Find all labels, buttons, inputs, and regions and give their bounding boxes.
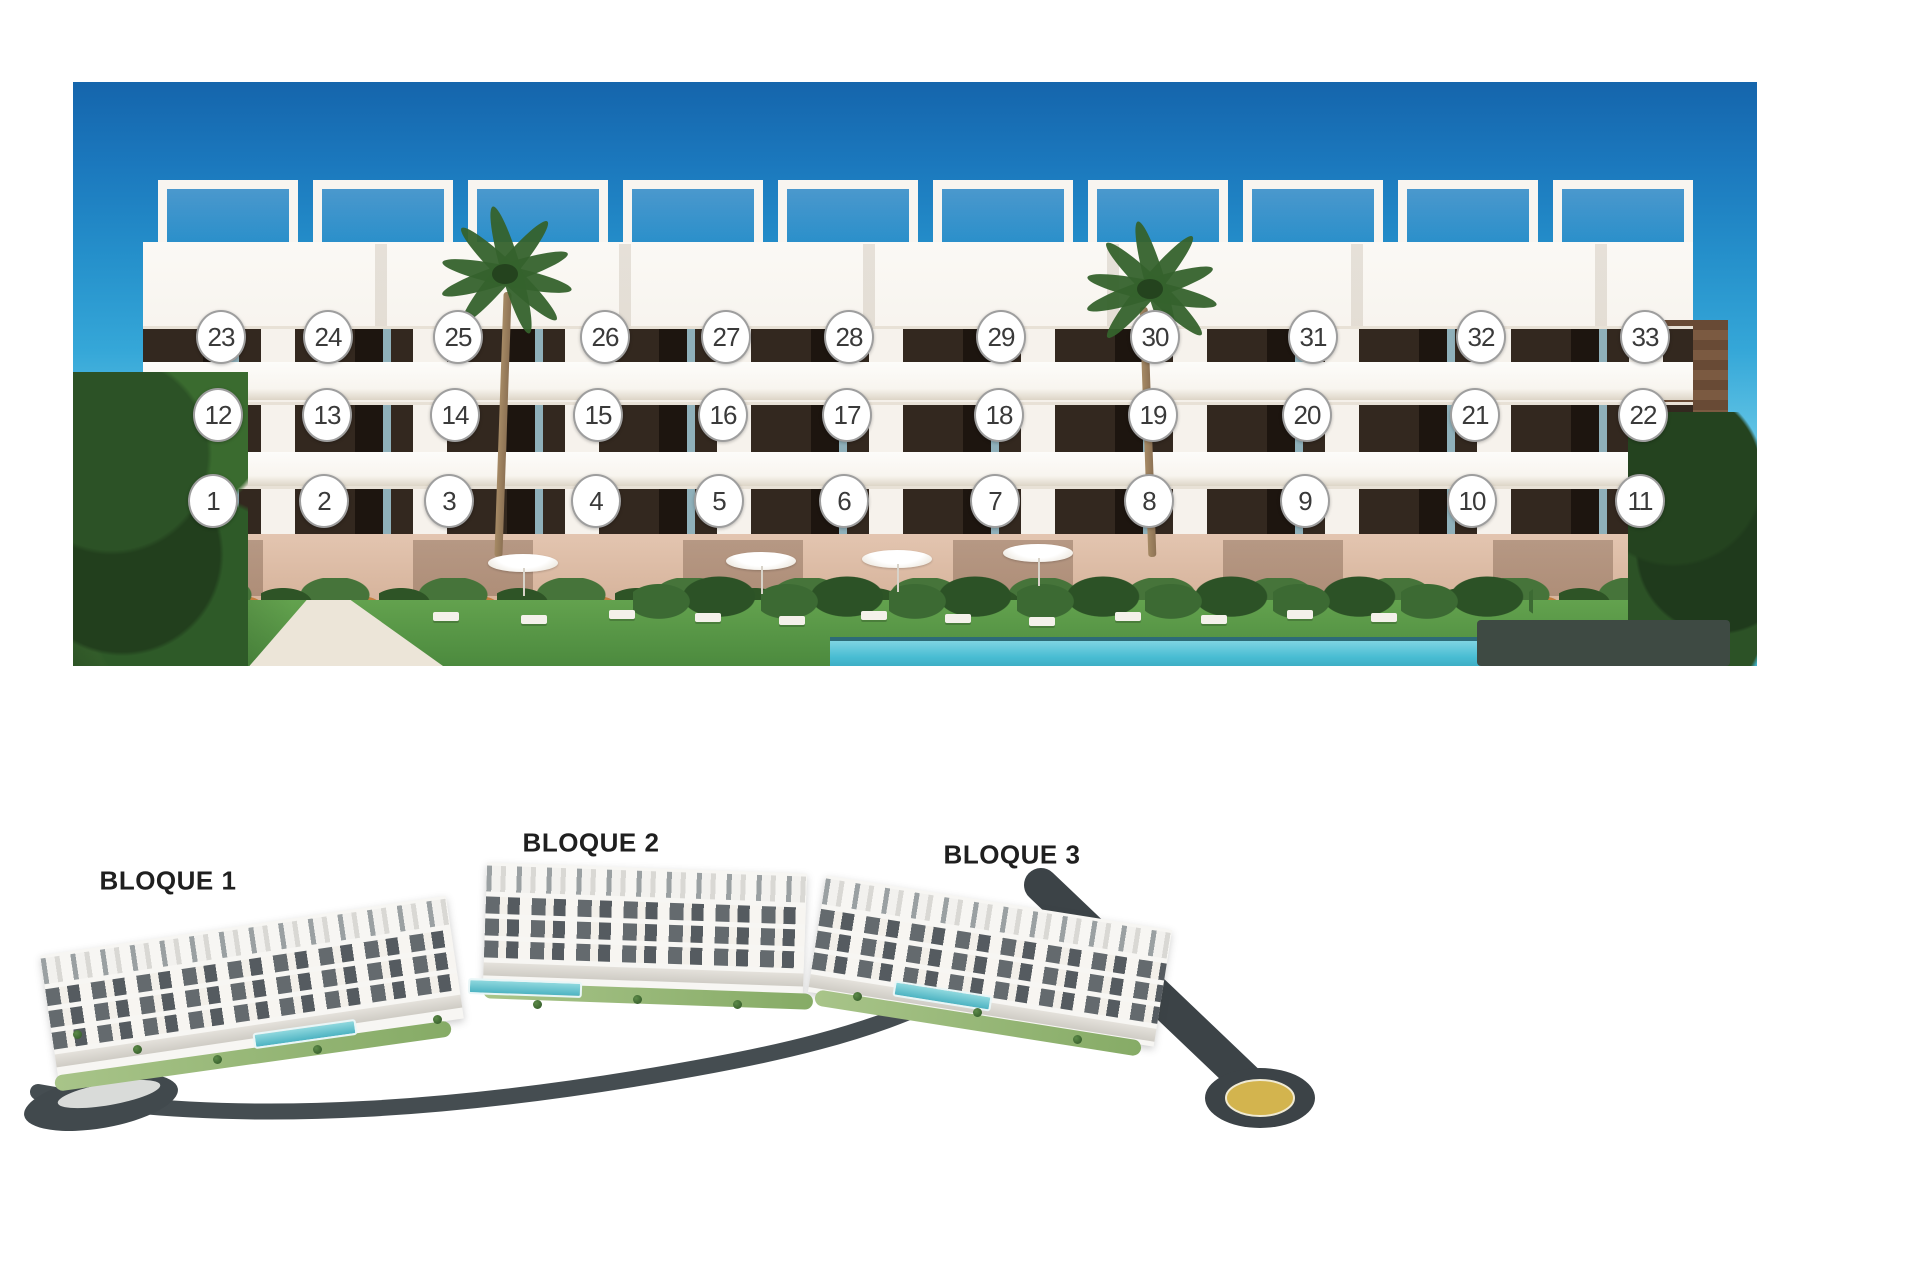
palm-crown-core [492,264,518,284]
palm-crown-core [1137,279,1163,299]
sun-lounger [861,611,887,620]
roof-pergolas [486,865,807,902]
unit-badge-4: 4 [571,474,621,528]
sun-lounger [1029,617,1055,626]
palm-bush-row [633,575,1533,623]
unit-badge-6: 6 [819,474,869,528]
sun-lounger [1115,612,1141,621]
unit-badge-32: 32 [1456,310,1506,364]
unit-badge-18: 18 [974,388,1024,442]
unit-badge-27: 27 [701,310,751,364]
unit-badge-2: 2 [299,474,349,528]
dark-hedge [1477,620,1730,666]
bloque-1-label: BLOQUE 1 [100,866,237,897]
unit-badge-7: 7 [970,474,1020,528]
unit-badge-25: 25 [433,310,483,364]
palm-dot [853,992,862,1001]
attic-shading [143,244,1693,326]
unit-badge-26: 26 [580,310,630,364]
parasol [726,552,796,570]
unit-badge-1: 1 [188,474,238,528]
bloque-2-building [483,862,807,994]
sun-lounger [609,610,635,619]
palm-dot [73,1030,82,1039]
unit-badge-28: 28 [824,310,874,364]
sun-lounger [695,613,721,622]
unit-badge-16: 16 [698,388,748,442]
sun-lounger [779,616,805,625]
page: 1234567891011121314151617181920212223242… [0,0,1920,1280]
unit-badge-33: 33 [1620,310,1670,364]
siteplan-render: BLOQUE 1 BLOQUE 2 BLOQUE 3 [13,830,1315,1135]
sun-lounger [945,614,971,623]
roundabout-center [1226,1080,1294,1116]
palm-dot [433,1015,442,1024]
unit-badge-24: 24 [303,310,353,364]
unit-badge-22: 22 [1618,388,1668,442]
palm-dot [533,1000,542,1009]
palm-dot [1073,1035,1082,1044]
unit-badge-11: 11 [1615,474,1665,528]
unit-badge-29: 29 [976,310,1026,364]
palm-dot [733,1000,742,1009]
unit-badge-23: 23 [196,310,246,364]
unit-badge-15: 15 [573,388,623,442]
sun-lounger [1287,610,1313,619]
unit-badge-31: 31 [1288,310,1338,364]
unit-badge-12: 12 [193,388,243,442]
unit-badge-14: 14 [430,388,480,442]
palm-dot [313,1045,322,1054]
parasol [862,550,932,568]
unit-badge-3: 3 [424,474,474,528]
unit-badge-5: 5 [694,474,744,528]
palm-dot [633,995,642,1004]
sun-lounger [433,612,459,621]
palm-dot [973,1008,982,1017]
unit-badge-21: 21 [1450,388,1500,442]
palm-dot [133,1045,142,1054]
parasol [488,554,558,572]
bloque-3-label: BLOQUE 3 [944,840,1081,871]
unit-badge-13: 13 [302,388,352,442]
unit-badge-17: 17 [822,388,872,442]
unit-badge-9: 9 [1280,474,1330,528]
sun-lounger [1201,615,1227,624]
palm-dot [213,1055,222,1064]
sun-lounger [521,615,547,624]
parasol [1003,544,1073,562]
facade-render: 1234567891011121314151617181920212223242… [73,82,1757,666]
unit-badge-30: 30 [1130,310,1180,364]
unit-badge-8: 8 [1124,474,1174,528]
unit-badge-19: 19 [1128,388,1178,442]
unit-badge-10: 10 [1447,474,1497,528]
unit-badge-20: 20 [1282,388,1332,442]
sun-lounger [1371,613,1397,622]
bloque-2-label: BLOQUE 2 [523,828,660,859]
